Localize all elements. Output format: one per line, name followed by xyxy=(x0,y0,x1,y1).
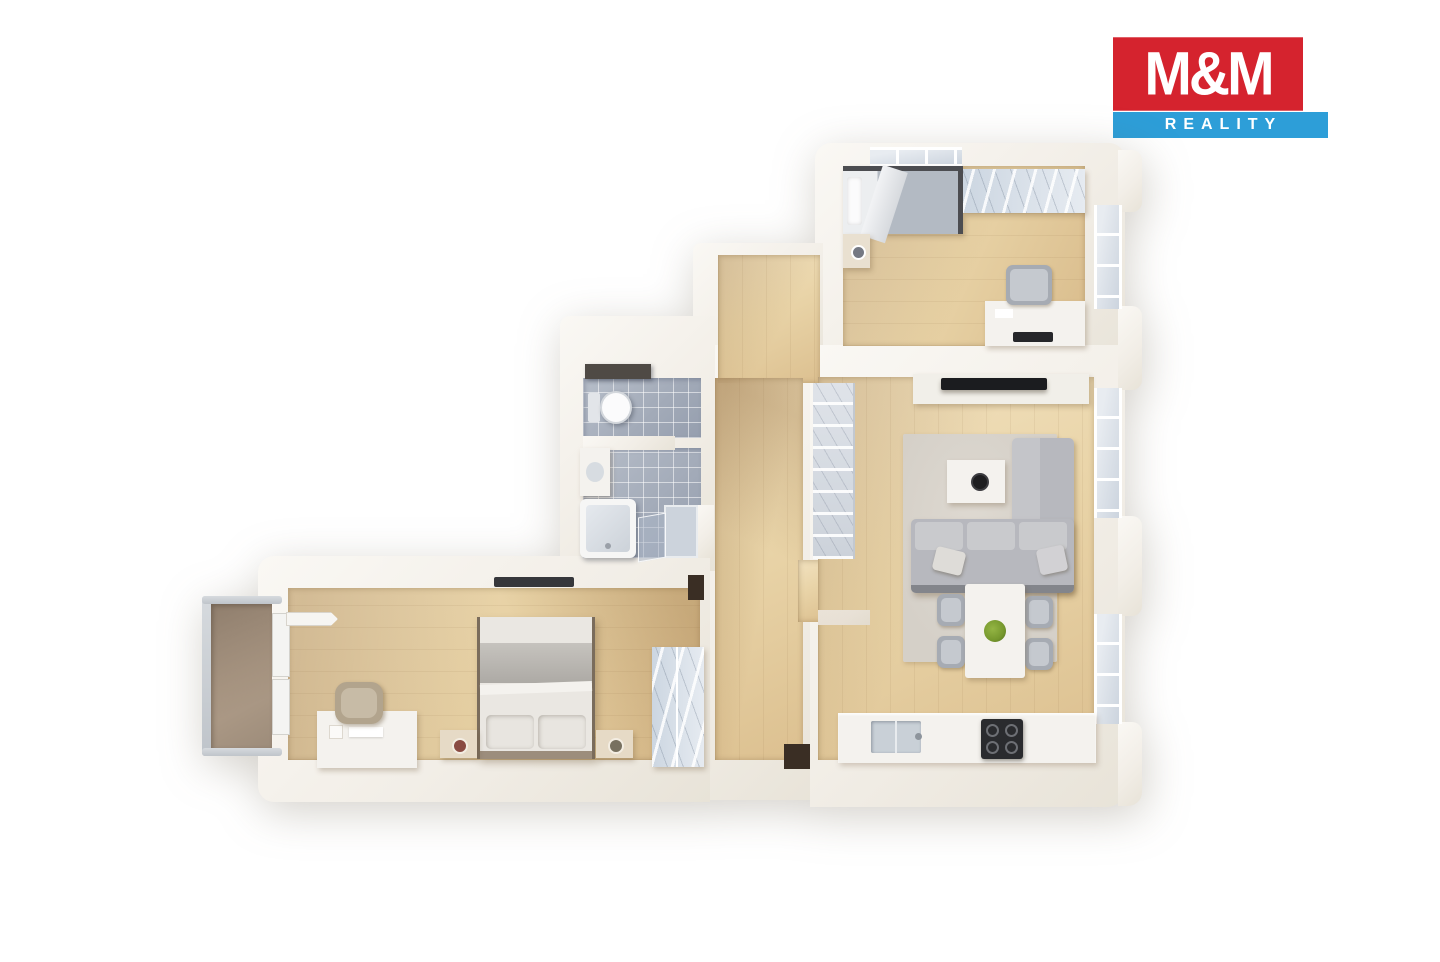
desk-chair-top-bedroom xyxy=(1006,265,1052,305)
bed-blanket xyxy=(480,643,592,683)
corridor-niche xyxy=(784,744,810,769)
tv xyxy=(941,378,1047,390)
wall-pillar-4 xyxy=(1118,722,1142,806)
sink-divider xyxy=(895,721,897,753)
sink-basin xyxy=(586,462,604,482)
bed-sheet-fold xyxy=(860,165,908,243)
dining-table xyxy=(965,584,1025,678)
laptop-icon xyxy=(1013,332,1053,342)
bedroom-desk-item xyxy=(329,725,343,739)
balcony-rail-bottom xyxy=(202,748,282,756)
wardrobe-divider xyxy=(676,647,678,767)
bathtub xyxy=(580,499,636,558)
sofa-back-cushion-2 xyxy=(967,522,1015,550)
nightstand-left xyxy=(440,730,477,758)
single-bed xyxy=(843,166,963,234)
bedroom-chair-seat xyxy=(341,688,377,718)
burner-icon-3 xyxy=(986,741,999,754)
shower-glass-panel xyxy=(638,513,666,563)
bathroom-sink xyxy=(580,448,610,496)
toilet-tank xyxy=(588,393,600,422)
nightstand-right xyxy=(596,730,633,758)
wall-dining-stub xyxy=(818,610,870,625)
wall-pillar-2 xyxy=(1118,306,1142,390)
bowl-icon xyxy=(971,473,989,491)
wardrobe-top-bedroom xyxy=(963,169,1085,213)
bedroom-tv xyxy=(494,577,574,587)
balcony-rail-left xyxy=(202,596,211,756)
plant-icon xyxy=(984,620,1006,642)
wall-bath-stub xyxy=(698,505,714,558)
balcony-door-lower xyxy=(272,679,290,735)
desk-top-bedroom xyxy=(985,301,1085,346)
burner-icon-1 xyxy=(986,724,999,737)
floorplan xyxy=(0,0,1440,962)
floor-corridor xyxy=(715,378,803,760)
bedroom-doorway-niche xyxy=(688,575,704,600)
dining-chair-1 xyxy=(937,594,965,626)
bedroom-chair xyxy=(335,682,383,724)
coffee-table xyxy=(947,460,1005,503)
bedroom-door-leaf xyxy=(286,612,338,626)
window-right-top-bedroom xyxy=(1094,205,1122,309)
nightstand-top-bedroom xyxy=(843,234,870,268)
bathtub-drain xyxy=(605,543,611,549)
faucet-icon xyxy=(915,733,922,740)
dining-chair-3 xyxy=(1025,596,1053,628)
bedroom-desk-keyboard xyxy=(349,727,383,737)
nightstand-right-knob-icon xyxy=(608,738,624,754)
kitchen-sink xyxy=(871,721,921,753)
toilet xyxy=(588,391,632,424)
double-bed xyxy=(477,617,595,759)
dining-chair-4 xyxy=(1025,638,1053,670)
cooktop xyxy=(981,719,1023,759)
bed-pillow xyxy=(847,177,862,225)
burner-icon-2 xyxy=(1005,724,1018,737)
bed-pillow-left xyxy=(486,715,534,749)
nightstand-left-knob-icon xyxy=(452,738,468,754)
wall-pillar-1 xyxy=(1118,150,1142,212)
window-right-living-upper xyxy=(1094,388,1122,518)
burner-icon-4 xyxy=(1005,741,1018,754)
dining-chair-2 xyxy=(937,636,965,668)
bedroom-wardrobe xyxy=(652,647,704,767)
desk-paper xyxy=(995,309,1013,318)
floor-balcony xyxy=(211,604,272,748)
balcony-rail-top xyxy=(202,596,282,604)
bed-headboard xyxy=(480,751,592,759)
nightstand-knob-icon xyxy=(851,245,866,260)
bed-pillow-right xyxy=(538,715,586,749)
floorplan-page: M&M REALITY xyxy=(0,0,1440,962)
wall-pillar-3 xyxy=(1118,516,1142,616)
window-top-bedroom-north xyxy=(870,147,962,167)
toilet-bowl xyxy=(600,391,632,424)
window-right-living-lower xyxy=(1094,614,1122,724)
floor-entry-hall xyxy=(718,255,820,383)
wc-shelf xyxy=(585,364,651,379)
hallway-closet xyxy=(813,383,855,559)
bed-sheet-edge xyxy=(480,681,592,695)
shower-tray xyxy=(664,505,698,558)
